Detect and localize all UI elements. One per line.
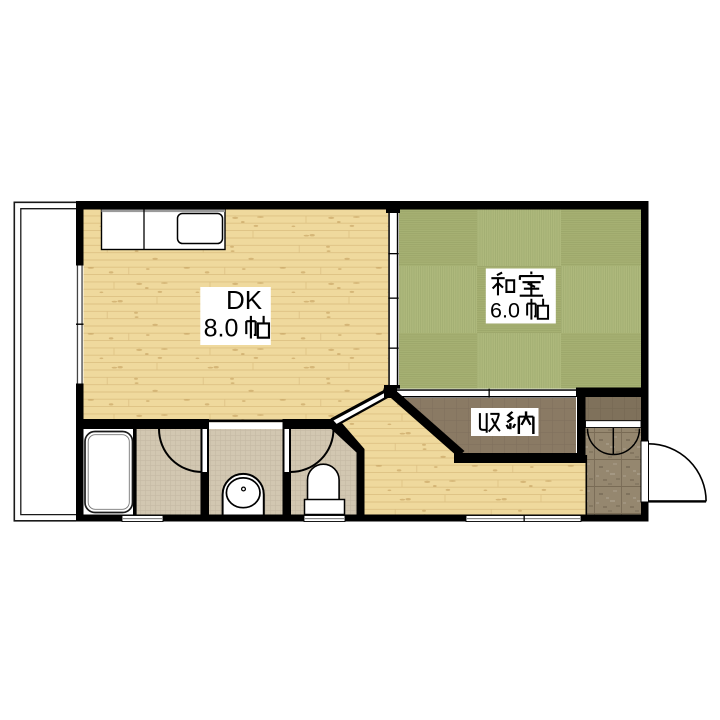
svg-text:DK: DK — [226, 285, 263, 315]
svg-text:8.0: 8.0 — [204, 315, 239, 343]
svg-text:6.0: 6.0 — [490, 299, 520, 323]
